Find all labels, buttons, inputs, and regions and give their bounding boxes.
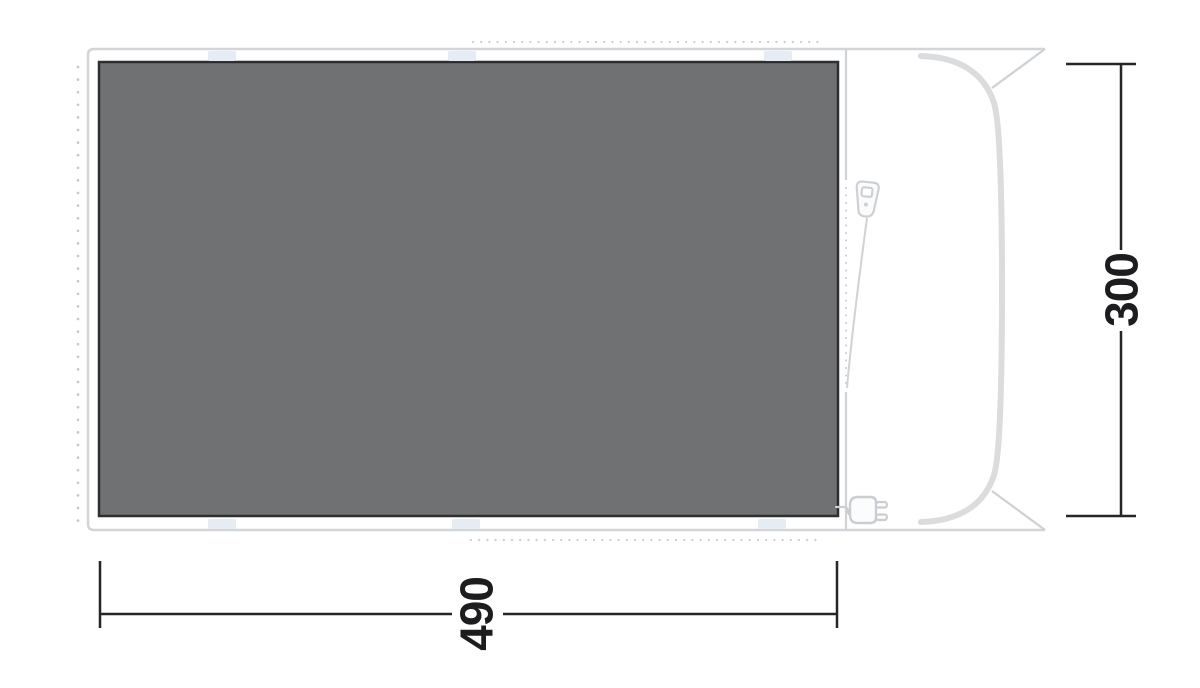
floorplan-svg: 490 300: [0, 0, 1200, 688]
plug-prong-top: [876, 502, 887, 508]
plug-body: [850, 497, 876, 523]
width-dimension-label: 490: [451, 577, 503, 651]
attachment-tab: [208, 519, 236, 529]
groundsheet: [99, 62, 838, 516]
height-dimension-label: 300: [1096, 253, 1148, 327]
attachment-tab: [208, 51, 236, 61]
tent-floorplan-diagram: 490 300: [0, 0, 1200, 688]
attachment-tab: [764, 51, 792, 61]
attachment-tab: [452, 519, 480, 529]
plug-prong-bottom: [876, 515, 887, 521]
attachment-tab: [758, 519, 786, 529]
attachment-tab: [448, 51, 476, 61]
